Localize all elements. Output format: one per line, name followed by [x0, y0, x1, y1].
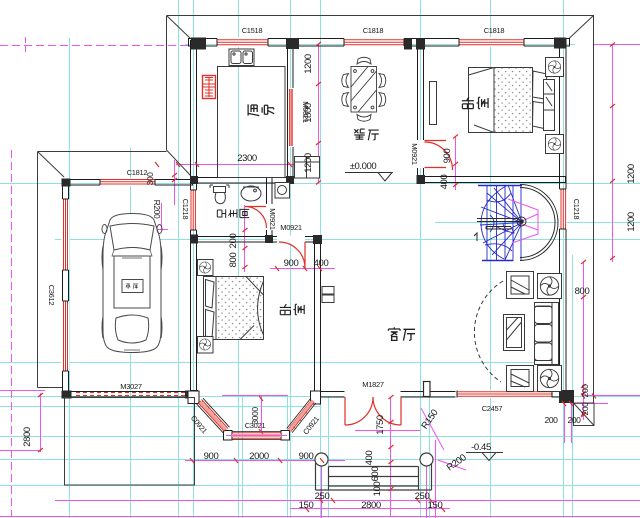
svg-text:R200: R200	[152, 200, 162, 219]
svg-text:800: 800	[575, 286, 590, 297]
svg-text:150: 150	[428, 500, 443, 511]
svg-text:2000: 2000	[249, 451, 269, 462]
svg-text:800: 800	[228, 253, 239, 268]
svg-text:300: 300	[145, 172, 155, 186]
svg-text:1750: 1750	[375, 415, 386, 435]
svg-text:C1818: C1818	[363, 26, 384, 35]
svg-text:C1818: C1818	[484, 26, 505, 35]
svg-text:200: 200	[568, 415, 582, 425]
svg-text:900: 900	[284, 258, 299, 269]
svg-text:-0.45: -0.45	[471, 442, 491, 453]
svg-text:2300: 2300	[237, 153, 257, 164]
svg-text:250: 250	[315, 491, 330, 502]
svg-text:1200: 1200	[303, 54, 314, 74]
svg-text:M0921: M0921	[410, 143, 419, 165]
svg-text:150: 150	[299, 500, 314, 511]
svg-text:200: 200	[545, 415, 559, 425]
svg-text:1200: 1200	[626, 164, 637, 184]
svg-text:C3612: C3612	[47, 285, 56, 306]
svg-text:900: 900	[442, 149, 453, 164]
svg-text:400: 400	[314, 258, 329, 269]
svg-text:M0921: M0921	[280, 223, 302, 232]
svg-text:200: 200	[228, 234, 239, 249]
svg-text:900: 900	[204, 451, 219, 462]
svg-text:C1518: C1518	[242, 26, 263, 35]
svg-text:C2457: C2457	[482, 404, 503, 413]
svg-text:2800: 2800	[361, 500, 381, 511]
svg-text:600: 600	[370, 467, 381, 482]
svg-text:100: 100	[372, 482, 383, 497]
svg-text:200: 200	[580, 402, 590, 416]
svg-text:1800: 1800	[303, 103, 314, 123]
svg-text:C1218: C1218	[572, 199, 581, 220]
svg-text:400: 400	[364, 451, 375, 466]
svg-text:3000: 3000	[250, 407, 260, 425]
svg-text:2800: 2800	[22, 427, 33, 447]
svg-text:400: 400	[439, 175, 450, 190]
svg-text:200: 200	[580, 384, 590, 398]
svg-text:M1827: M1827	[362, 380, 384, 389]
svg-text:1200: 1200	[303, 153, 314, 173]
svg-text:C1218: C1218	[181, 199, 190, 220]
svg-text:±0.000: ±0.000	[350, 161, 377, 172]
svg-text:900: 900	[299, 451, 314, 462]
svg-text:1200: 1200	[626, 212, 637, 232]
svg-text:M3027: M3027	[120, 382, 142, 391]
svg-text:M0921: M0921	[268, 208, 277, 230]
